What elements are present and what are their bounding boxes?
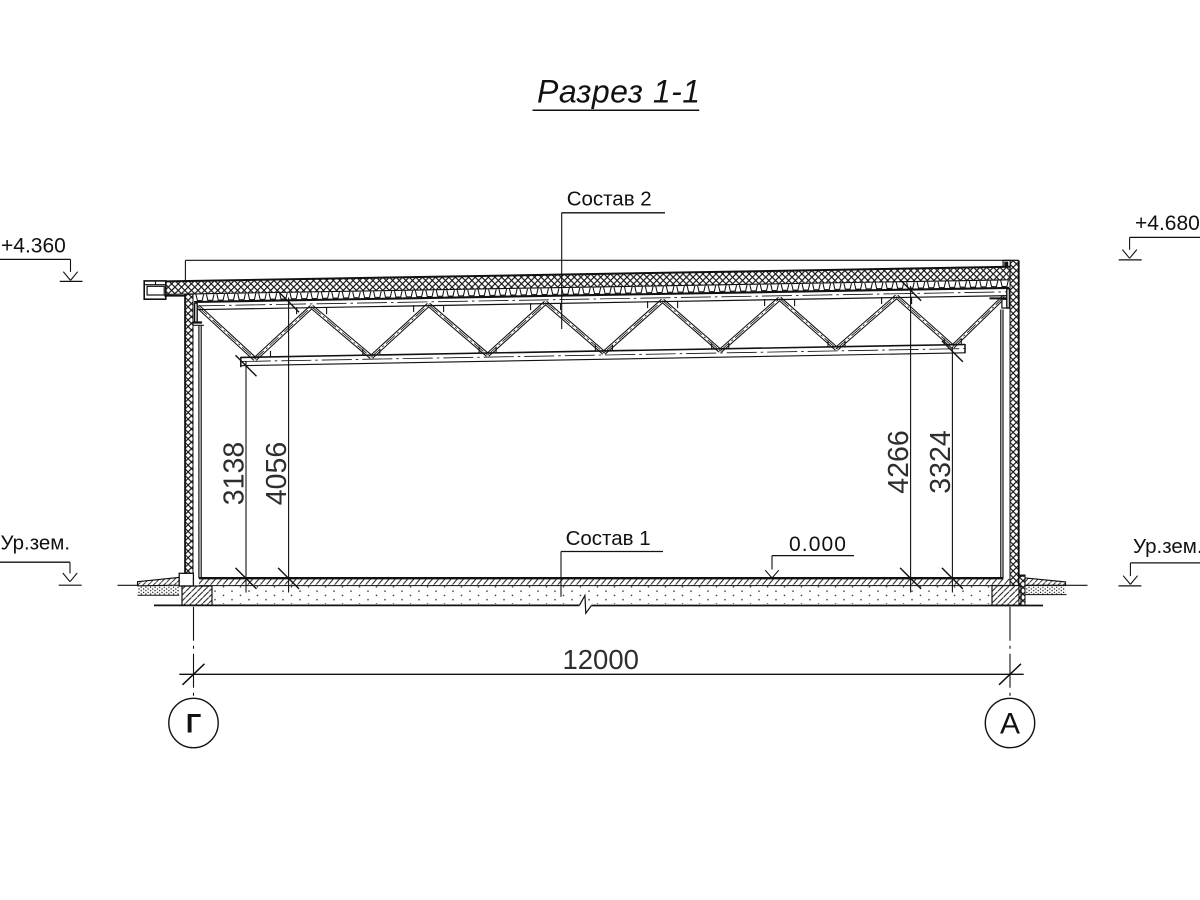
svg-text:4056: 4056 — [261, 442, 293, 505]
svg-text:3324: 3324 — [925, 430, 957, 494]
svg-text:4266: 4266 — [883, 430, 915, 493]
svg-text:0.000: 0.000 — [789, 533, 847, 556]
svg-text:12000: 12000 — [562, 644, 638, 675]
svg-text:+4.680: +4.680 — [1135, 212, 1200, 235]
svg-text:А: А — [1000, 708, 1020, 741]
svg-text:Состав 1: Состав 1 — [566, 527, 651, 550]
svg-text:Ур.зем.: Ур.зем. — [1, 532, 71, 555]
svg-text:+4.360: +4.360 — [1, 235, 66, 258]
svg-text:Разрез 1-1: Разрез 1-1 — [537, 74, 701, 110]
svg-text:3138: 3138 — [219, 442, 251, 505]
svg-text:Состав 2: Состав 2 — [567, 188, 652, 211]
svg-text:Г: Г — [186, 709, 201, 739]
svg-text:Ур.зем.: Ур.зем. — [1133, 535, 1200, 558]
